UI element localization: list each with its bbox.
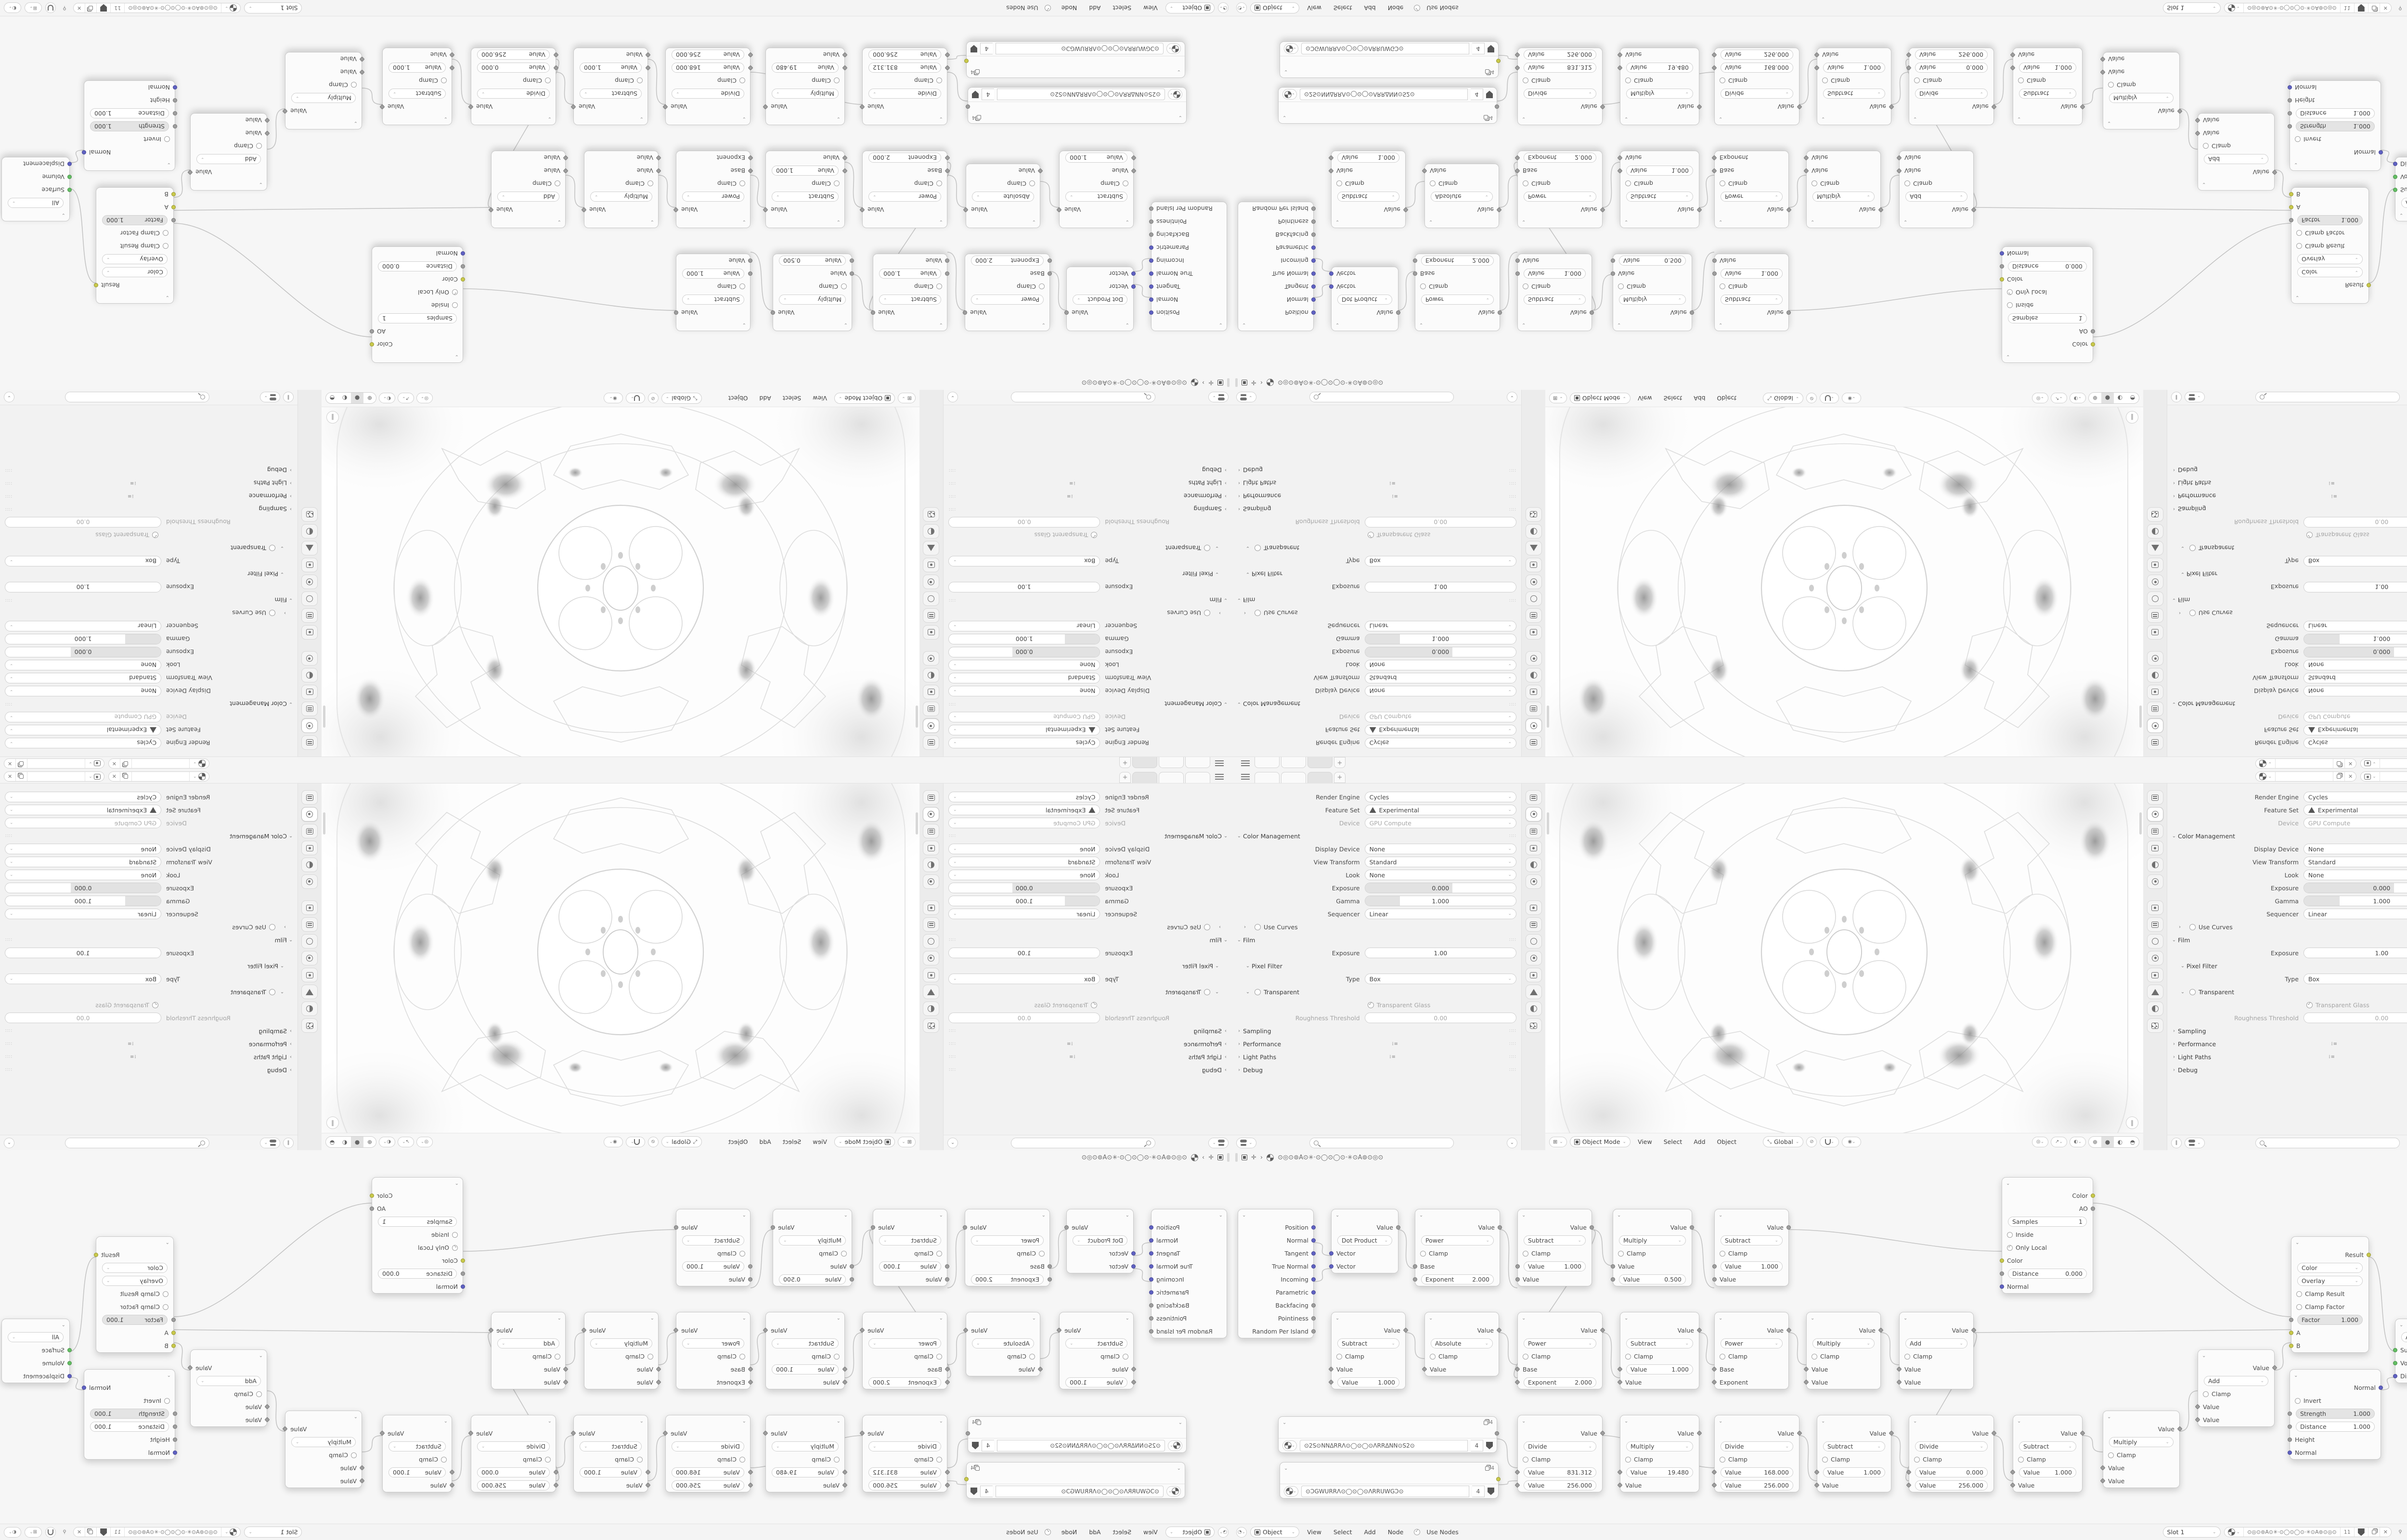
material-slot-selector[interactable]: Slot 1⌄ — [244, 1527, 302, 1538]
viewlayer-copy-icon[interactable] — [15, 759, 27, 768]
input-socket[interactable] — [1712, 1277, 1717, 1282]
node[interactable]: ⌄ValuePower⌄ClampBaseExponent2.000 — [1517, 151, 1603, 228]
viewport-3d[interactable]: ‖ ⊞⌄ Object Mode⌄ View Select Add Object… — [1545, 390, 2143, 757]
clamp-checkbox[interactable] — [1812, 1354, 1817, 1360]
search-input[interactable] — [1011, 392, 1155, 403]
output-socket[interactable] — [662, 1430, 668, 1436]
node[interactable]: ⌄ValueDivide⌄ClampValue168.000Value256.0… — [1714, 48, 1799, 125]
value-field[interactable]: Value0.000 — [1915, 1467, 1988, 1477]
section-color-management[interactable]: ⌄Color Management∷∷ — [2170, 830, 2407, 842]
device-select[interactable]: GPU Compute⌄ — [1365, 712, 1516, 722]
operation-select[interactable]: Subtract⌄ — [1065, 192, 1127, 202]
section-color-management[interactable]: ⌄Color Management∷∷ — [5, 830, 295, 842]
shading-solid-button[interactable]: ● — [351, 393, 363, 404]
search-input[interactable] — [2255, 1138, 2400, 1148]
input-socket[interactable] — [359, 56, 364, 62]
display-device-select[interactable]: None⌄ — [1365, 844, 1516, 854]
strength-field[interactable]: Strength1.000 — [2296, 1409, 2375, 1419]
feature-set-select[interactable]: Experimental⌄ — [5, 725, 161, 735]
use-curves-checkbox[interactable] — [269, 610, 275, 616]
output-socket[interactable] — [1495, 105, 1499, 109]
output-socket[interactable] — [1889, 1430, 1894, 1436]
value-field[interactable]: Value1.000 — [580, 1467, 642, 1477]
menu-add[interactable]: Add — [1689, 395, 1709, 402]
section-debug[interactable]: ›Debug∷∷ — [948, 1064, 1229, 1076]
node[interactable]: ⌄ResultColor⌄Overlay⌄Clamp ResultClamp F… — [2291, 1236, 2369, 1353]
properties-tab-texture[interactable] — [1526, 507, 1542, 522]
render-engine-select[interactable]: Cycles⌄ — [2303, 792, 2407, 802]
sequencer-select[interactable]: Linear⌄ — [5, 909, 161, 919]
properties-tab-modifiers[interactable] — [2147, 917, 2163, 932]
properties-tab-object[interactable] — [1526, 625, 1542, 640]
section-debug[interactable]: ›Debug∷∷ — [2170, 464, 2407, 476]
proportional-edit-button[interactable]: ◉⌄ — [1842, 1137, 1861, 1147]
node-header[interactable]: ⌄4 — [968, 1417, 1186, 1428]
node[interactable]: ⌄ValueMultiply⌄ClampValueValue — [1806, 1312, 1881, 1389]
node-header[interactable]: ⌄ — [1425, 1312, 1499, 1324]
node[interactable]: ⌄ValueAdd⌄ClampValueValue — [1899, 151, 1974, 228]
output-socket[interactable] — [1496, 59, 1501, 64]
input-socket[interactable] — [1906, 1482, 1911, 1488]
menu-select[interactable]: Select — [1109, 4, 1136, 12]
node[interactable]: ⌄ValueMultiply⌄ClampValueValue — [285, 1411, 362, 1488]
use-curves-checkbox[interactable] — [1204, 610, 1210, 616]
operation-select[interactable]: Power⌄ — [971, 1235, 1044, 1245]
input-socket[interactable] — [461, 264, 465, 269]
input-socket[interactable] — [553, 52, 558, 57]
section-debug[interactable]: ›Debug∷∷ — [1235, 464, 1516, 476]
exposure-field[interactable]: 1.00 — [2303, 582, 2407, 592]
operation-select[interactable]: Add⌄ — [1905, 1338, 1967, 1348]
input-socket[interactable] — [1514, 1366, 1520, 1372]
scene-selector[interactable]: ⌄ ✕ — [2255, 758, 2356, 769]
properties-tab-world[interactable] — [302, 651, 318, 666]
clamp-checkbox[interactable] — [936, 1457, 942, 1463]
operation-select[interactable]: Divide⌄ — [672, 89, 744, 99]
menu-add[interactable]: Add — [1085, 4, 1105, 12]
section-color-management[interactable]: ⌄Color Management∷∷ — [1235, 698, 1516, 710]
clamp-checkbox[interactable] — [1618, 284, 1624, 290]
node-header[interactable]: ⌄ — [471, 1415, 556, 1427]
clamp-checkbox[interactable] — [1336, 1354, 1342, 1360]
menu-select[interactable]: Select — [1329, 1528, 1357, 1536]
operation-select[interactable]: Dot Product⌄ — [1073, 295, 1127, 305]
view-transform-select[interactable]: Standard⌄ — [5, 673, 161, 683]
menu-view[interactable]: View — [1303, 4, 1326, 12]
section-light-paths[interactable]: ›Light Paths⁞≡∷∷ — [1235, 1051, 1516, 1063]
node[interactable]: ⌄ValueAbsolute⌄ClampValue — [966, 164, 1040, 228]
input-socket[interactable] — [2000, 264, 2004, 269]
node-header[interactable]: ⌄ — [965, 319, 1049, 331]
input-socket[interactable] — [2288, 1412, 2292, 1416]
node[interactable]: ⌄NormalInvertStrength1.000Distance1.000H… — [2290, 80, 2381, 171]
pivot-point-button[interactable]: ⊘ — [1806, 1137, 1817, 1147]
transparent-glass-checkbox[interactable] — [1368, 1002, 1374, 1008]
clamp-checkbox[interactable] — [739, 1354, 745, 1360]
properties-tab-texture[interactable] — [302, 1018, 318, 1033]
workspace-tab[interactable] — [1159, 757, 1184, 768]
look-select[interactable]: None⌄ — [948, 660, 1100, 670]
node[interactable]: ⌄ValueDivide⌄ClampValue831.312Value256.0… — [862, 1415, 947, 1492]
operation-select[interactable]: Divide⌄ — [1524, 89, 1596, 99]
node-header[interactable]: ⌄ — [773, 319, 852, 331]
transparent-checkbox[interactable] — [2189, 989, 2196, 995]
workspace-tab[interactable] — [1185, 772, 1210, 783]
shading-solid-button[interactable]: ● — [2101, 1137, 2114, 1147]
fake-user-shield-icon[interactable] — [1486, 1442, 1493, 1450]
properties-tab-physics[interactable] — [2147, 575, 2163, 589]
copy-material-icon[interactable] — [85, 3, 96, 13]
look-select[interactable]: None⌄ — [2303, 660, 2407, 670]
feature-set-select[interactable]: Experimental⌄ — [2303, 805, 2407, 815]
copy-material-icon[interactable] — [85, 1527, 96, 1537]
node[interactable]: ⌄ValueSubtract⌄ClampValue1.000Value — [1620, 151, 1699, 228]
value-field[interactable]: Value1.000 — [682, 269, 744, 279]
value-field[interactable]: Value256.000 — [868, 50, 941, 60]
properties-tab-particles[interactable] — [302, 934, 318, 949]
shader-editor-type-button[interactable]: ◔⌄ — [1236, 3, 1247, 13]
output-socket[interactable] — [370, 1206, 374, 1211]
value-field[interactable]: Value256.000 — [1721, 1480, 1793, 1490]
clamp-checkbox[interactable] — [1822, 1457, 1828, 1463]
node-header[interactable]: ⌄ — [863, 113, 947, 125]
node-header[interactable]: ⌄ — [873, 319, 947, 331]
pause-render-button[interactable]: ‖ — [326, 1116, 339, 1129]
output-socket[interactable] — [1149, 258, 1153, 263]
input-socket[interactable] — [1413, 271, 1417, 276]
input-socket[interactable] — [553, 1482, 558, 1488]
pause-icon-button[interactable]: ‖ — [2171, 1138, 2182, 1148]
transparent-glass-checkbox[interactable] — [1368, 532, 1374, 539]
viewport-3d[interactable]: ‖ ⊞⌄ Object Mode⌄ View Select Add Object… — [1545, 783, 2143, 1150]
operation-select[interactable]: Subtract⌄ — [1626, 192, 1693, 202]
exposure-field[interactable]: 1.00 — [948, 582, 1100, 592]
options-chevron-button[interactable]: ⌄ — [1507, 1138, 1517, 1148]
section-light-paths[interactable]: ›Light Paths⁞≡∷∷ — [1235, 477, 1516, 489]
exposure-field[interactable]: 1.00 — [5, 948, 161, 958]
value-field[interactable]: Value0.000 — [1915, 63, 1988, 73]
output-socket[interactable] — [2177, 1426, 2182, 1431]
group-name-field[interactable]: ⊙ƆGWURRΛ⊙◯⊙◯⊙ΛRRUWGƆ⊙ — [1301, 43, 1469, 55]
properties-tab-tool[interactable] — [923, 735, 940, 750]
strength-field[interactable]: Strength1.000 — [90, 121, 169, 131]
subsection-pixel-filter[interactable]: ⌄Pixel Filter — [5, 568, 295, 580]
node-header[interactable]: ⌄ — [1620, 1312, 1699, 1324]
exposure-slider[interactable]: 0.000 — [5, 647, 161, 657]
input-socket[interactable] — [2288, 98, 2292, 103]
clamp-checkbox[interactable] — [1625, 1457, 1631, 1463]
output-socket[interactable] — [1971, 207, 1976, 212]
output-socket[interactable] — [2080, 1430, 2085, 1436]
scene-close-icon[interactable]: ✕ — [109, 759, 120, 768]
view-transform-select[interactable]: Standard⌄ — [948, 857, 1100, 867]
menu-view[interactable]: View — [1633, 395, 1656, 402]
editor-type-button[interactable]: ⌄ — [1236, 392, 1256, 403]
properties-tab-data[interactable] — [2147, 541, 2163, 555]
node[interactable]: ⌄ValueMultiply⌄ClampValueValue0.500 — [773, 1209, 852, 1286]
samples-field[interactable]: Samples1 — [2008, 1217, 2087, 1227]
properties-tab-constraints[interactable] — [1526, 968, 1542, 982]
node[interactable]: ⌄4⌄⊙2S⊙NNΔRRΛ⊙◯⊙◯⊙ΛRRΔNN⊙S2⊙4 — [1278, 87, 1497, 124]
transform-orientation[interactable]: ⤡Global⌄ — [1763, 393, 1803, 404]
node[interactable]: ⌄ValuePower⌄ClampBaseExponent2.000 — [965, 254, 1050, 331]
section-sampling[interactable]: ›Sampling∷∷ — [948, 1025, 1229, 1037]
unlink-material-icon[interactable]: ✕ — [74, 1527, 85, 1537]
use-curves-checkbox[interactable] — [1255, 924, 1261, 930]
input-socket[interactable] — [2100, 69, 2105, 75]
properties-tab-scene[interactable] — [1526, 858, 1542, 872]
properties-tab-material[interactable] — [1526, 1001, 1542, 1016]
node-header[interactable]: ⌄ — [1817, 113, 1891, 125]
input-socket[interactable] — [945, 1379, 950, 1385]
node-header[interactable]: ⌄ — [766, 1415, 844, 1427]
render-engine-select[interactable]: Cycles⌄ — [5, 792, 161, 802]
shader-context-selector[interactable]: Object⌄ — [1165, 2, 1215, 13]
output-socket[interactable] — [2272, 1365, 2277, 1370]
properties-tab-render[interactable] — [2147, 807, 2163, 821]
exposure-slider[interactable]: 0.000 — [2303, 883, 2407, 893]
output-socket[interactable] — [2367, 1253, 2371, 1257]
operation-select[interactable]: Subtract⌄ — [388, 89, 446, 99]
node-header[interactable]: ⌄ — [1425, 216, 1499, 228]
section-color-management[interactable]: ⌄Color Management∷∷ — [2170, 698, 2407, 710]
editor-type-button[interactable]: ⌄ — [1208, 392, 1229, 403]
properties-tab-physics[interactable] — [2147, 951, 2163, 965]
pause-icon-button[interactable]: ‖ — [283, 392, 294, 403]
input-socket[interactable] — [1515, 258, 1520, 263]
node-header[interactable]: ⌄ — [1238, 319, 1313, 331]
operation-select[interactable]: Multiply⌄ — [291, 93, 356, 103]
node-header[interactable]: ⌄ — [285, 1411, 362, 1423]
add-workspace-button[interactable]: + — [1119, 757, 1131, 768]
input-socket[interactable] — [1814, 1469, 1819, 1475]
group-name-field[interactable]: ⊙2S⊙NNΔRRΛ⊙◯⊙◯⊙ΛRRΔNN⊙S2⊙ — [1300, 1440, 1468, 1451]
output-socket[interactable] — [1403, 207, 1408, 212]
use-curves-checkbox[interactable] — [269, 924, 275, 930]
group-users-count[interactable]: 4 — [980, 43, 993, 55]
overlays-dropdown[interactable]: ↗⌄ — [2051, 1137, 2067, 1147]
workspace-tab[interactable] — [1185, 757, 1210, 768]
viewlayer-copy-icon[interactable] — [15, 772, 27, 781]
clamp-checkbox[interactable] — [2203, 1391, 2209, 1397]
output-socket[interactable] — [674, 1225, 678, 1230]
node-header[interactable]: ⌄ — [863, 1415, 947, 1427]
output-socket[interactable] — [2091, 329, 2095, 334]
value-field[interactable]: Value1.000 — [2019, 63, 2076, 73]
input-socket[interactable] — [842, 1379, 847, 1385]
operation-select[interactable]: Multiply⌄ — [1812, 1338, 1875, 1348]
unlink-material-icon[interactable]: ✕ — [74, 3, 85, 13]
value-field[interactable]: Value1.000 — [388, 1467, 446, 1477]
fake-user-shield-icon[interactable] — [2355, 1527, 2368, 1537]
pin-icon[interactable]: ⚲ — [2395, 3, 2406, 13]
clamp-checkbox[interactable] — [1523, 1354, 1528, 1360]
output-socket[interactable] — [1496, 1327, 1501, 1333]
shader-context-selector[interactable]: Object⌄ — [1250, 2, 1299, 13]
exponent-field[interactable]: Exponent2.000 — [971, 1274, 1044, 1284]
inside-checkbox[interactable] — [452, 303, 458, 308]
input-socket[interactable] — [1803, 1366, 1809, 1372]
clamp-factor-checkbox[interactable] — [163, 1304, 168, 1310]
input-socket[interactable] — [67, 1361, 72, 1365]
output-socket[interactable] — [1696, 1327, 1702, 1333]
device-select[interactable]: GPU Compute⌄ — [5, 712, 161, 722]
viewlayer-selector[interactable]: ⌄ ✕ — [4, 758, 104, 769]
node-header[interactable]: ⌄ — [766, 113, 844, 125]
material-users-count[interactable]: 11 — [2341, 1527, 2355, 1537]
gizmo-dropdown[interactable]: ◎⌄ — [416, 1137, 433, 1147]
node[interactable]: ⌄ValueSubtract⌄ClampValue1.000Value — [765, 1312, 845, 1389]
value-field[interactable]: Value256.000 — [1721, 50, 1793, 60]
viewport-editor-type-button[interactable]: ⊞⌄ — [898, 393, 916, 404]
use-nodes-checkbox[interactable] — [1414, 1529, 1420, 1535]
scene-name-field[interactable] — [2276, 759, 2333, 768]
section-sampling[interactable]: ›Sampling∷∷ — [5, 503, 295, 515]
clamp-checkbox[interactable] — [739, 1457, 745, 1463]
clamp-checkbox[interactable] — [1720, 1457, 1725, 1463]
input-socket[interactable] — [67, 188, 72, 192]
operation-select[interactable]: Subtract⌄ — [388, 1441, 446, 1451]
output-socket[interactable] — [1786, 1327, 1791, 1333]
workspace-tab[interactable] — [1255, 757, 1280, 768]
properties-tab-object[interactable] — [923, 625, 940, 640]
section-film[interactable]: ⌄Film∷∷ — [5, 594, 295, 606]
clamp-checkbox[interactable] — [2018, 78, 2024, 84]
device-select[interactable]: GPU Compute⌄ — [948, 712, 1100, 722]
node[interactable]: ⌄4⌄⊙2S⊙NNΔRRΛ⊙◯⊙◯⊙ΛRRΔNN⊙S2⊙4 — [1278, 1416, 1497, 1453]
output-socket[interactable] — [763, 1430, 768, 1436]
node-header[interactable]: ⌄ — [574, 113, 647, 125]
pivot-point-button[interactable]: ⊘ — [1806, 393, 1817, 404]
output-socket[interactable] — [379, 104, 385, 109]
input-socket[interactable] — [1814, 65, 1819, 70]
value-field[interactable]: Value1.000 — [879, 1261, 941, 1271]
output-socket[interactable] — [468, 1430, 473, 1436]
pin-icon[interactable]: ⚲ — [59, 3, 70, 13]
fake-user-shield-icon[interactable] — [972, 91, 979, 99]
value-field[interactable]: Value256.000 — [868, 1480, 941, 1490]
input-socket[interactable] — [850, 1277, 854, 1282]
node-header[interactable]: ⌄ — [1817, 1415, 1891, 1427]
properties-tab-world[interactable] — [923, 651, 940, 666]
output-socket[interactable] — [1498, 1225, 1502, 1230]
input-socket[interactable] — [1711, 1379, 1717, 1385]
clamp-checkbox[interactable] — [1523, 1251, 1528, 1257]
input-socket[interactable] — [264, 117, 270, 123]
input-socket[interactable] — [1711, 168, 1717, 173]
input-socket[interactable] — [1611, 1277, 1615, 1282]
material-datablock[interactable]: ⌄ ⊙◎⊙⊚A⊙✳·⊙◯⊙◯⊙·✳⊙A⊚⊙◎⊙ 11 ✕ — [73, 3, 241, 13]
distance-field[interactable]: Distance0.000 — [378, 1269, 457, 1279]
roughness-threshold-field[interactable]: 0.00 — [1365, 517, 1516, 527]
properties-tab-output[interactable] — [923, 702, 940, 716]
type-select[interactable]: Box⌄ — [5, 974, 161, 984]
editor-type-button[interactable]: ⌄ — [1208, 1138, 1229, 1148]
output-socket[interactable] — [1696, 104, 1702, 109]
input-socket[interactable] — [264, 1404, 270, 1409]
output-socket[interactable] — [1878, 207, 1883, 212]
clamp-factor-checkbox[interactable] — [2296, 1304, 2302, 1310]
editor-type-button[interactable]: ⌄ — [2185, 392, 2205, 403]
properties-tab-world[interactable] — [1526, 874, 1542, 889]
input-socket[interactable] — [945, 1469, 950, 1475]
clamp-factor-checkbox[interactable] — [163, 231, 168, 236]
output-socket[interactable] — [771, 1225, 775, 1230]
node-header[interactable]: ⌄ — [584, 1312, 658, 1324]
operation-select[interactable]: Subtract⌄ — [1524, 1235, 1586, 1245]
input-socket[interactable] — [2289, 1344, 2293, 1348]
output-socket[interactable] — [1600, 1430, 1605, 1436]
input-socket[interactable] — [173, 1412, 177, 1416]
material-slot-selector[interactable]: Slot 1⌄ — [244, 2, 302, 13]
exponent-field[interactable]: Exponent2.000 — [1524, 153, 1596, 163]
node-header[interactable]: ⌄ — [1900, 216, 1973, 228]
input-socket[interactable] — [1896, 168, 1902, 173]
node[interactable]: ⌄ValueMultiply⌄ClampValueValue0.500 — [1613, 254, 1692, 331]
output-socket[interactable] — [1311, 219, 1316, 224]
menu-view[interactable]: View — [808, 1138, 831, 1145]
input-socket[interactable] — [748, 52, 753, 57]
subsection-transparent[interactable]: ⌄Transparent — [1235, 986, 1516, 998]
group-name-field[interactable]: ⊙2S⊙NNΔRRΛ⊙◯⊙◯⊙ΛRRΔNN⊙S2⊙ — [1300, 89, 1468, 101]
operation-select[interactable]: Divide⌄ — [1524, 1441, 1596, 1451]
input-socket[interactable] — [1048, 258, 1052, 263]
input-socket[interactable] — [2195, 1417, 2200, 1422]
input-socket[interactable] — [461, 251, 465, 256]
output-socket[interactable] — [763, 207, 768, 212]
input-socket[interactable] — [645, 1469, 650, 1475]
input-socket[interactable] — [2289, 1331, 2293, 1335]
shading-wireframe-button[interactable]: ⊕ — [363, 1137, 376, 1147]
properties-tab-render[interactable] — [2147, 719, 2163, 733]
properties-tab-physics[interactable] — [923, 575, 940, 589]
input-socket[interactable] — [842, 1482, 847, 1488]
workspace-tab[interactable] — [1281, 772, 1306, 783]
fake-user-shield-icon[interactable] — [1488, 45, 1494, 53]
node-header[interactable]: ⌄ — [1613, 319, 1692, 331]
exposure-field[interactable]: 1.00 — [1365, 582, 1516, 592]
menu-select[interactable]: Select — [1659, 1138, 1687, 1145]
type-select[interactable]: Box⌄ — [5, 556, 161, 566]
node-header[interactable]: ⌄ — [873, 1209, 947, 1221]
input-socket[interactable] — [1611, 271, 1615, 276]
operation-select[interactable]: Divide⌄ — [1721, 89, 1793, 99]
output-socket[interactable] — [2091, 1193, 2095, 1198]
clamp-checkbox[interactable] — [1720, 1354, 1725, 1360]
properties-tab-data[interactable] — [302, 985, 318, 999]
look-select[interactable]: None⌄ — [1365, 660, 1516, 670]
section-debug[interactable]: ›Debug∷∷ — [1235, 1064, 1516, 1076]
clamp-checkbox[interactable] — [1523, 284, 1528, 290]
output-socket[interactable] — [966, 1431, 970, 1436]
value-field[interactable]: Value0.500 — [779, 256, 846, 266]
section-film[interactable]: ⌄Film∷∷ — [5, 934, 295, 946]
input-socket[interactable] — [1514, 1482, 1520, 1488]
section-sampling[interactable]: ›Sampling∷∷ — [2170, 503, 2407, 515]
search-input[interactable] — [1011, 1138, 1155, 1148]
node[interactable]: ⌄ValueSubtract⌄ClampValue1.000Value — [382, 1415, 452, 1492]
copy-material-icon[interactable] — [2368, 3, 2380, 13]
clamp-checkbox[interactable] — [1123, 1354, 1128, 1360]
input-socket[interactable] — [1328, 1379, 1333, 1385]
node-header[interactable]: ⌄ — [1060, 1312, 1133, 1324]
input-socket[interactable] — [748, 1469, 753, 1475]
input-socket[interactable] — [1514, 168, 1520, 173]
invert-checkbox[interactable] — [164, 137, 170, 142]
output-socket[interactable] — [1600, 1327, 1605, 1333]
pivot-point-button[interactable]: ⊘ — [648, 393, 659, 404]
node-header[interactable]: ⌄4 — [967, 1463, 1185, 1474]
